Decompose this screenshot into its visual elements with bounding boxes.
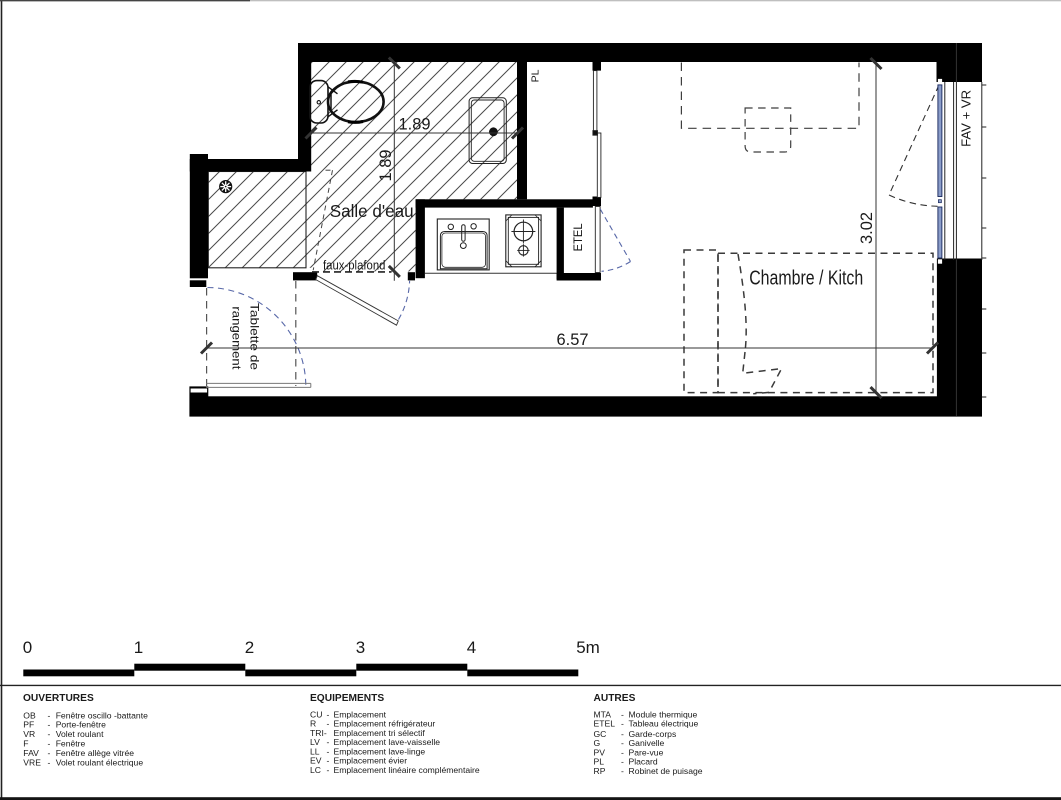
svg-text:Salle d'eau: Salle d'eau: [330, 201, 414, 221]
svg-text:-: -: [48, 757, 51, 767]
svg-text:Robinet de puisage: Robinet de puisage: [629, 766, 703, 776]
svg-text:LC: LC: [310, 765, 321, 775]
svg-text:1.89: 1.89: [377, 150, 395, 182]
svg-text:4: 4: [467, 638, 476, 657]
svg-text:rangement: rangement: [230, 306, 244, 370]
svg-text:Tableau électrique: Tableau électrique: [629, 719, 699, 729]
svg-text:ETEL: ETEL: [594, 719, 616, 729]
svg-text:Emplacement linéaire complémen: Emplacement linéaire complémentaire: [334, 765, 480, 775]
svg-text:AUTRES: AUTRES: [594, 693, 636, 704]
svg-text:Tablette de: Tablette de: [247, 303, 261, 370]
svg-text:-: -: [621, 766, 624, 776]
svg-text:3: 3: [356, 638, 365, 657]
svg-text:ETEL: ETEL: [571, 223, 585, 251]
svg-text:6.57: 6.57: [557, 331, 589, 349]
svg-text:RP: RP: [594, 766, 606, 776]
svg-text:EQUIPEMENTS: EQUIPEMENTS: [310, 693, 384, 704]
svg-text:OUVERTURES: OUVERTURES: [23, 693, 94, 704]
svg-text:3.02: 3.02: [858, 212, 876, 244]
svg-text:1.89: 1.89: [399, 116, 431, 134]
svg-text:0: 0: [23, 638, 32, 657]
svg-text:PL: PL: [530, 69, 542, 82]
svg-text:2: 2: [245, 638, 254, 657]
svg-text:faux-plafond: faux-plafond: [323, 258, 386, 273]
svg-text:Volet roulant électrique: Volet roulant électrique: [56, 757, 144, 767]
svg-text:VRE: VRE: [23, 757, 41, 767]
svg-text:Chambre / Kitch: Chambre / Kitch: [749, 267, 863, 289]
svg-text:5m: 5m: [576, 638, 600, 657]
svg-text:FAV + VR: FAV + VR: [960, 90, 974, 147]
svg-text:-: -: [327, 765, 330, 775]
svg-text:-: -: [621, 719, 624, 729]
svg-text:-: -: [327, 719, 330, 729]
svg-text:1: 1: [134, 638, 143, 657]
